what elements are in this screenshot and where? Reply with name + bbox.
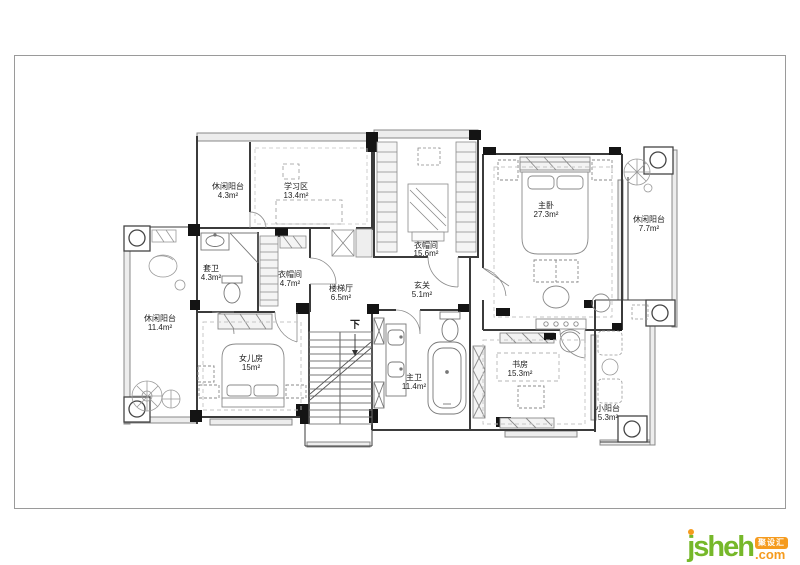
duct-shaft xyxy=(332,229,372,257)
svg-text:7.7m²: 7.7m² xyxy=(639,224,660,233)
balcony-study-door xyxy=(250,212,266,228)
svg-text:学习区: 学习区 xyxy=(284,181,308,191)
cloakroom-large-furniture xyxy=(377,142,476,252)
svg-text:4.7m²: 4.7m² xyxy=(280,279,301,288)
svg-text:11.4m²: 11.4m² xyxy=(402,382,427,391)
svg-text:5.1m²: 5.1m² xyxy=(412,290,433,299)
logo-right-column: 聚设汇 .com xyxy=(755,537,788,561)
master-bedroom-door xyxy=(483,268,509,296)
svg-text:衣帽间: 衣帽间 xyxy=(278,269,302,279)
svg-text:4.3m²: 4.3m² xyxy=(218,191,239,200)
room-label-study-room: 书房 15.3m² xyxy=(508,359,533,378)
window-band-left-balcony xyxy=(124,227,130,424)
logo: jsheh 聚设汇 .com xyxy=(687,525,788,561)
window-band-daughter-room xyxy=(210,419,292,425)
svg-text:4.3m²: 4.3m² xyxy=(201,273,222,282)
room-label-stair-hall: 楼梯厅 6.5m² xyxy=(329,283,353,302)
svg-text:主卧: 主卧 xyxy=(538,200,554,210)
stair-down-arrow xyxy=(352,350,358,356)
study-area-furniture xyxy=(255,148,367,224)
daughter-room-door xyxy=(275,312,297,342)
svg-text:15.6m²: 15.6m² xyxy=(414,249,439,258)
window-band-top-left-wing xyxy=(197,133,372,141)
svg-text:主卫: 主卫 xyxy=(406,372,422,382)
room-label-cloakroom-large: 衣帽间 15.6m² xyxy=(414,240,439,258)
svg-text:书房: 书房 xyxy=(512,359,528,369)
room-label-small-balcony: 小阳台 5.3m² xyxy=(596,403,620,422)
cloakroom-small-door xyxy=(310,258,336,284)
room-label-study-area: 学习区 13.4m² xyxy=(284,181,309,200)
logo-brand-text: jsheh xyxy=(687,531,753,563)
svg-text:5.3m²: 5.3m² xyxy=(598,413,619,422)
logo-tld: .com xyxy=(755,549,785,561)
room-label-master-bedroom: 主卧 27.3m² xyxy=(534,200,559,219)
study-room-furniture xyxy=(473,330,585,428)
floor-plan-drawing: 休闲阳台 4.3m² 学习区 13.4m² 衣帽间 15.6m² 主卧 27.3… xyxy=(0,0,800,565)
logo-brand: jsheh xyxy=(687,533,753,561)
room-label-master-bathroom: 主卫 11.4m² xyxy=(402,372,427,391)
room-label-cloakroom-small: 衣帽间 4.7m² xyxy=(278,269,302,288)
entry-door xyxy=(428,257,458,287)
svg-text:13.4m²: 13.4m² xyxy=(284,191,309,200)
svg-text:休闲阳台: 休闲阳台 xyxy=(212,181,244,191)
small-balcony-furniture xyxy=(598,331,622,403)
svg-text:套卫: 套卫 xyxy=(203,263,219,273)
svg-text:休闲阳台: 休闲阳台 xyxy=(633,214,665,224)
svg-text:27.3m²: 27.3m² xyxy=(534,210,559,219)
window-band-closet-top xyxy=(374,130,478,138)
svg-text:休闲阳台: 休闲阳台 xyxy=(144,313,176,323)
svg-text:6.5m²: 6.5m² xyxy=(331,293,352,302)
room-label-leisure-balcony-top: 休闲阳台 4.3m² xyxy=(212,181,244,200)
room-label-ensuite-bathroom: 套卫 4.3m² xyxy=(201,263,222,282)
svg-text:15.3m²: 15.3m² xyxy=(508,369,533,378)
staircase xyxy=(309,332,372,424)
room-label-foyer: 玄关 5.1m² xyxy=(412,280,433,299)
svg-text:玄关: 玄关 xyxy=(414,280,430,290)
window-band-study-room xyxy=(505,431,577,437)
wall-top-left-wing xyxy=(197,132,374,230)
stair-direction-label: 下 xyxy=(350,319,360,331)
svg-text:女儿房: 女儿房 xyxy=(239,353,263,363)
room-label-leisure-balcony-right: 休闲阳台 7.7m² xyxy=(633,214,665,233)
svg-text:小阳台: 小阳台 xyxy=(596,403,620,413)
svg-text:楼梯厅: 楼梯厅 xyxy=(329,283,353,293)
room-label-leisure-balcony-left: 休闲阳台 11.4m² xyxy=(144,313,176,332)
room-label-daughters-room: 女儿房 15m² xyxy=(239,353,263,372)
svg-text:11.4m²: 11.4m² xyxy=(148,323,173,332)
svg-text:15m²: 15m² xyxy=(242,363,261,372)
